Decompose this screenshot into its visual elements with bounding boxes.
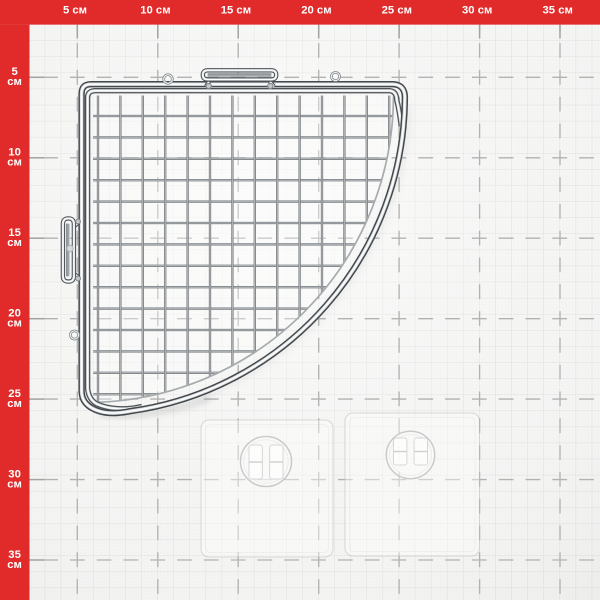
svg-text:35 см: 35 см [543, 5, 573, 17]
svg-text:см: см [7, 559, 22, 571]
svg-text:см: см [7, 478, 22, 490]
svg-text:см: см [7, 76, 22, 88]
svg-text:25 см: 25 см [382, 5, 412, 17]
svg-text:15 см: 15 см [221, 5, 251, 17]
svg-text:см: см [7, 318, 22, 330]
svg-text:см: см [7, 157, 22, 169]
svg-text:5 см: 5 см [63, 5, 87, 17]
svg-text:30 см: 30 см [462, 5, 492, 17]
svg-text:10 см: 10 см [140, 5, 170, 17]
svg-text:см: см [7, 237, 22, 249]
svg-text:20 см: 20 см [301, 5, 331, 17]
svg-text:см: см [7, 398, 22, 410]
